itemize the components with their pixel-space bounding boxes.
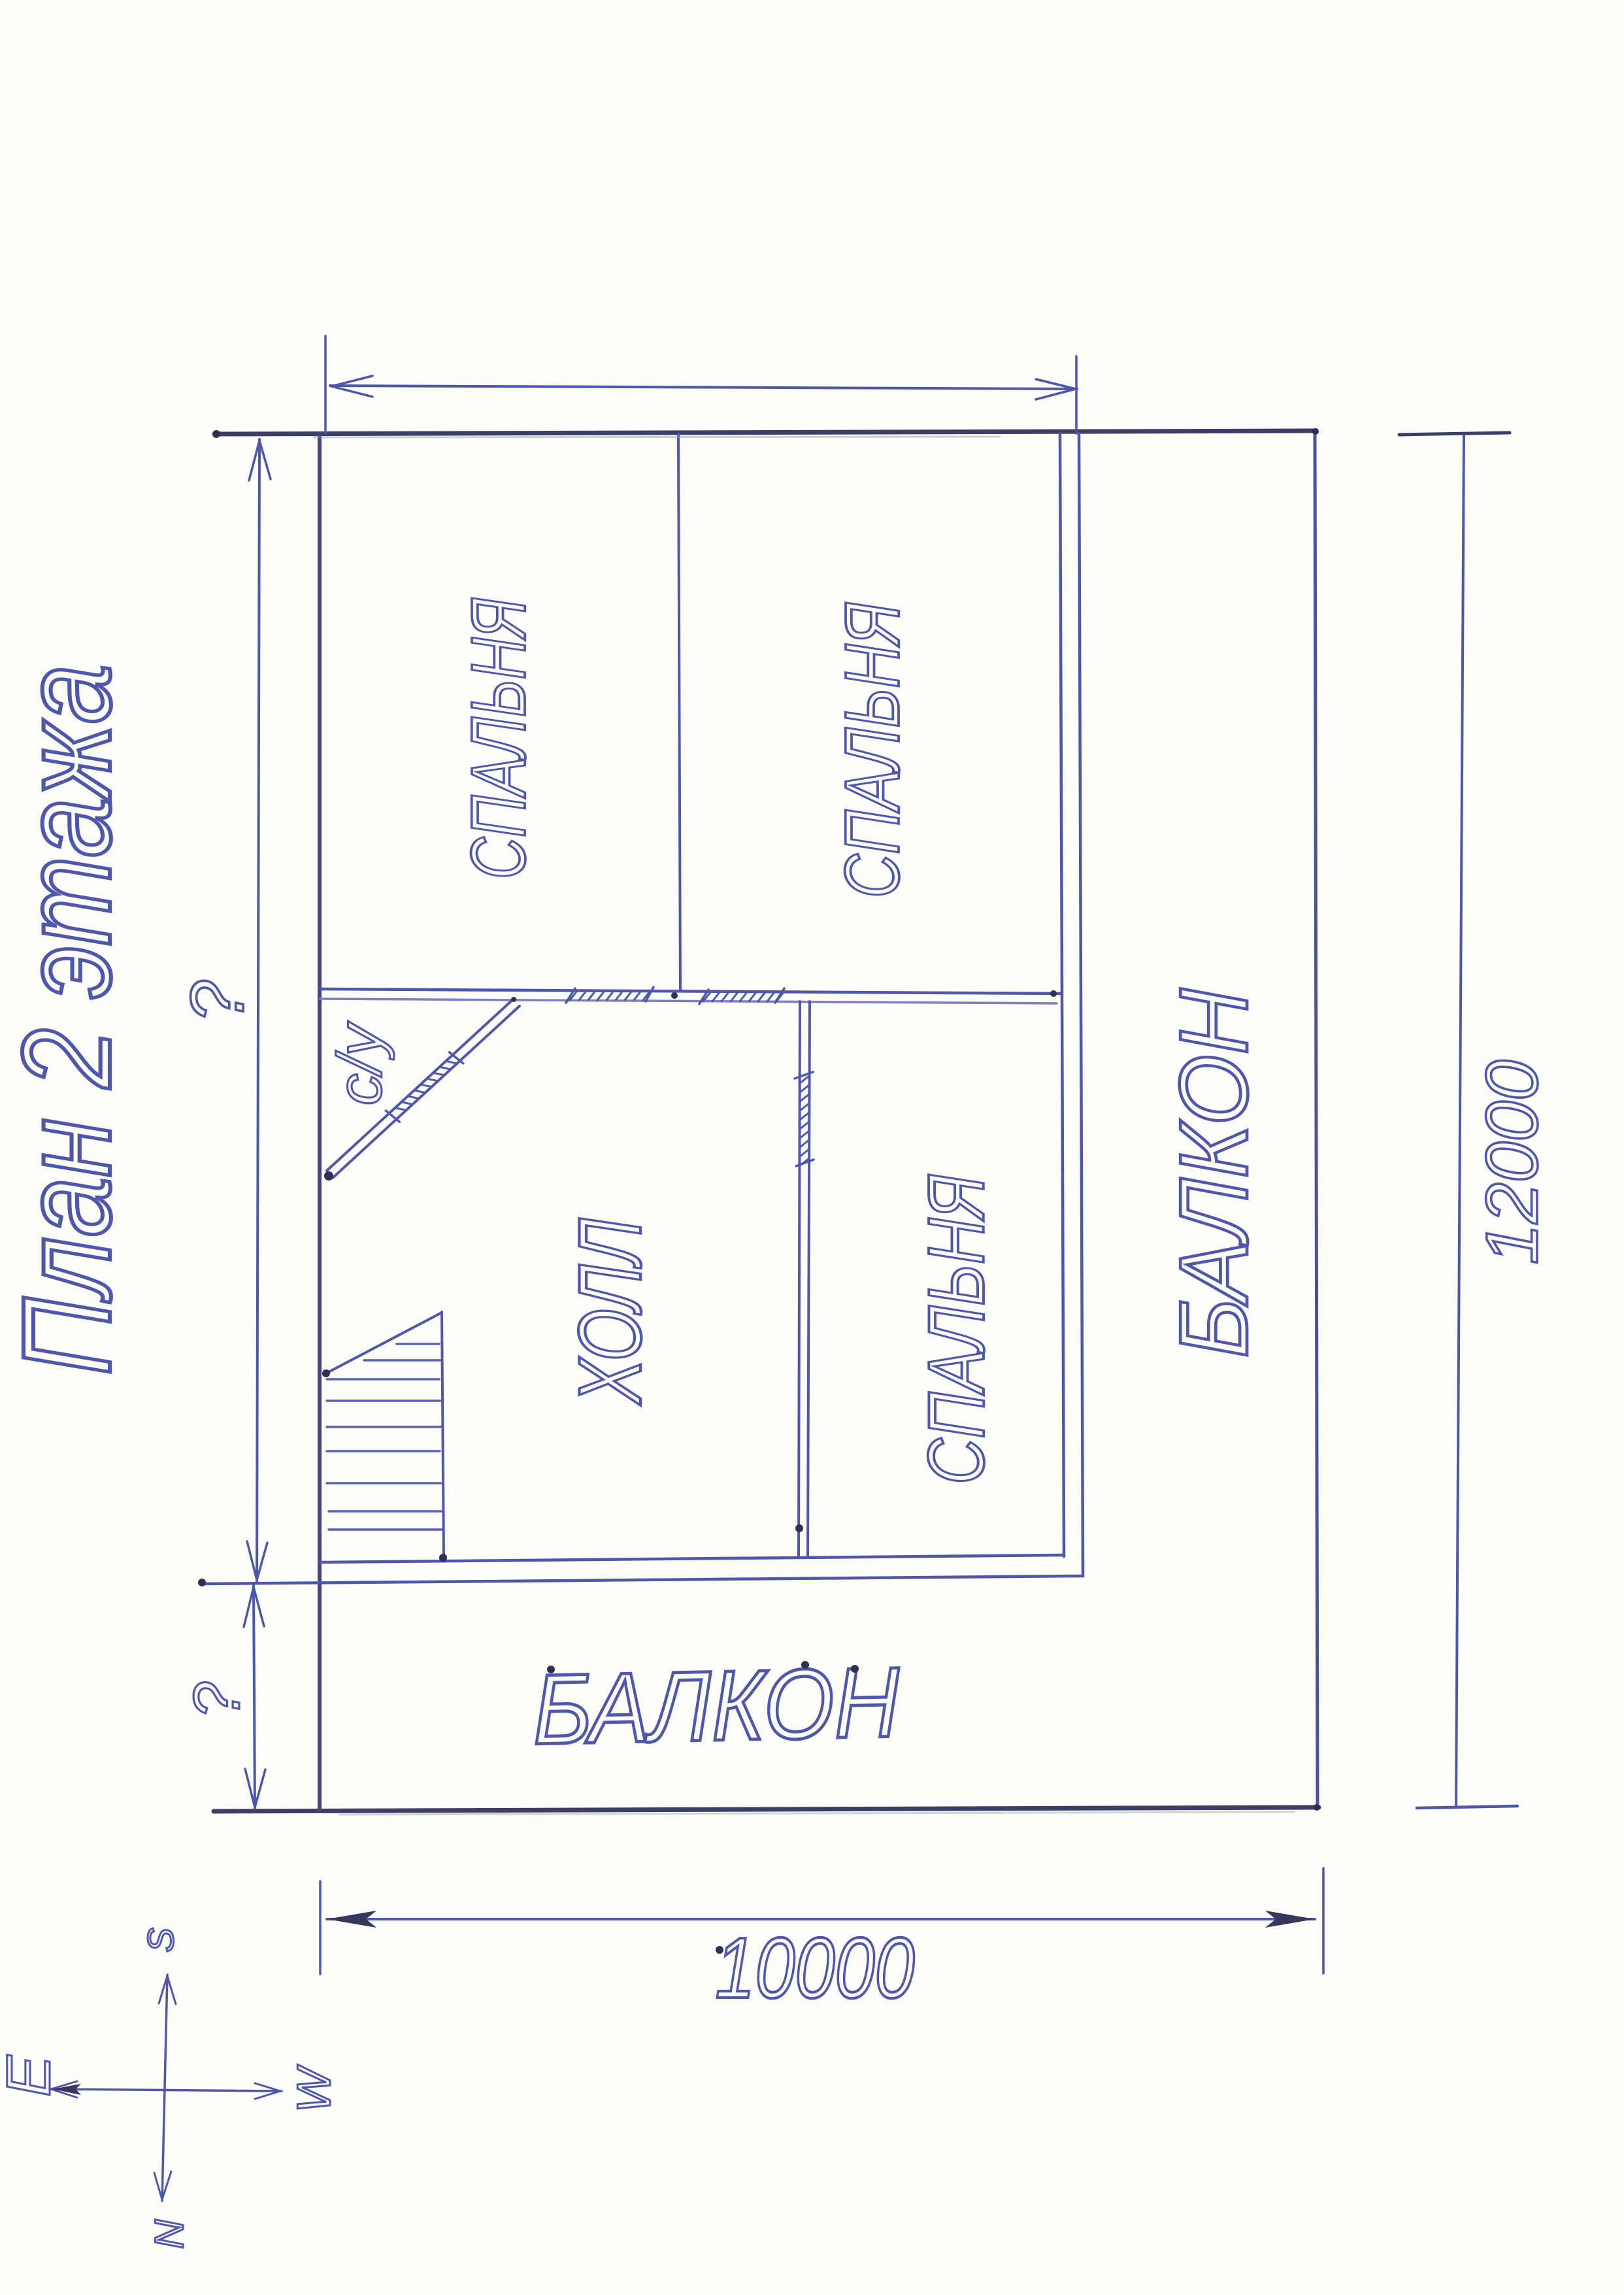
svg-text:План 2 этажа: План 2 этажа bbox=[0, 664, 137, 1375]
svg-text:?: ? bbox=[176, 980, 259, 1022]
svg-text:S: S bbox=[140, 1928, 181, 1952]
svg-text:?: ? bbox=[180, 1682, 254, 1718]
svg-text:с/у: с/у bbox=[325, 1021, 395, 1105]
svg-text:W: W bbox=[288, 2064, 340, 2113]
svg-text:СПАЛЬНЯ: СПАЛЬНЯ bbox=[829, 603, 916, 898]
svg-text:E: E bbox=[0, 2054, 63, 2097]
svg-text:БАЛКОН: БАЛКОН bbox=[1160, 988, 1268, 1358]
svg-text:12000: 12000 bbox=[1471, 1060, 1553, 1265]
svg-text:БАЛКОН: БАЛКОН bbox=[532, 1647, 901, 1766]
svg-text:N: N bbox=[147, 2219, 192, 2249]
svg-text:СПАЛЬНЯ: СПАЛЬНЯ bbox=[456, 598, 542, 879]
svg-text:10000: 10000 bbox=[716, 1920, 915, 2016]
svg-text:ХОЛЛ: ХОЛЛ bbox=[560, 1218, 659, 1405]
svg-text:СПАЛЬНЯ: СПАЛЬНЯ bbox=[912, 1174, 1001, 1484]
